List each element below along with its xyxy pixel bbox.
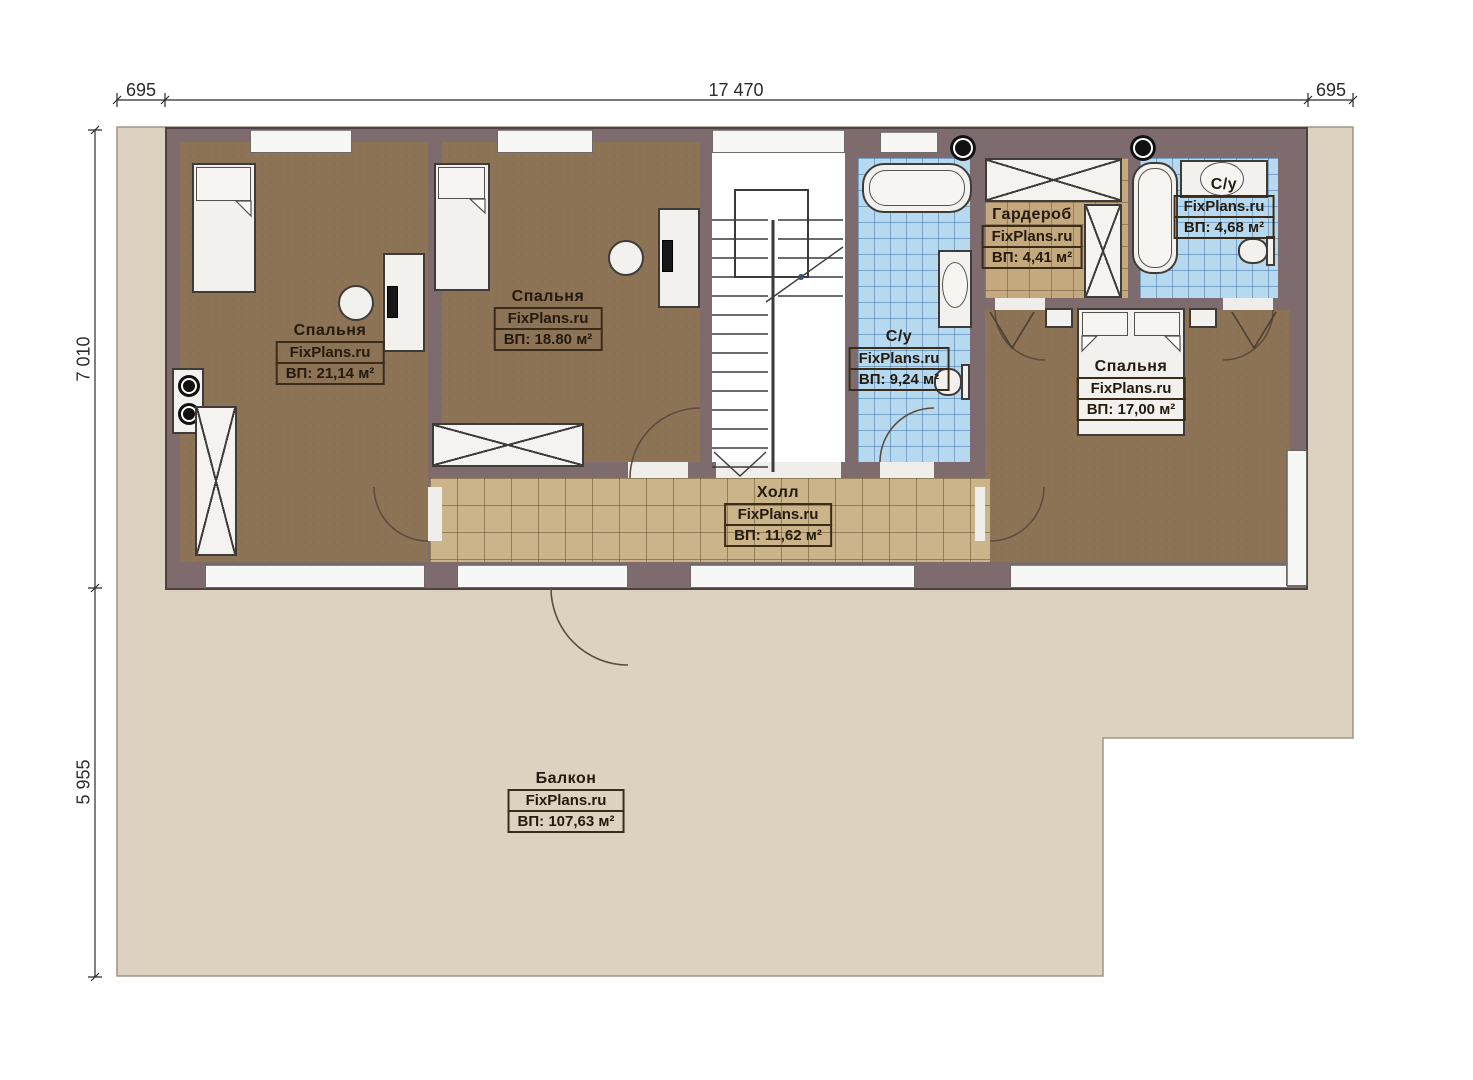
room-label-wc2: С/у FixPlans.ru ВП: 4,68 м² bbox=[1174, 176, 1275, 239]
bed-pillow bbox=[438, 167, 485, 199]
bathtub-inner bbox=[869, 170, 965, 206]
dim-left-balcony: 5 955 bbox=[74, 759, 95, 804]
window-bottom-bedroom3 bbox=[1010, 564, 1288, 588]
chair bbox=[608, 240, 644, 276]
toilet-tank bbox=[961, 364, 970, 400]
chair bbox=[338, 285, 374, 321]
toilet-icon bbox=[1238, 238, 1268, 264]
door-gap-wardrobe bbox=[995, 298, 1045, 310]
wardrobe-cabinet bbox=[432, 423, 584, 467]
window-top-bedroom2 bbox=[497, 129, 593, 153]
toilet-tank bbox=[1266, 236, 1275, 266]
bathtub-inner bbox=[1138, 168, 1172, 268]
window-top-bedroom1 bbox=[250, 129, 352, 153]
wardrobe-cabinet bbox=[195, 406, 237, 556]
vent-icon bbox=[1130, 135, 1156, 161]
room-label-wardrobe: Гардероб FixPlans.ru ВП: 4,41 м² bbox=[982, 206, 1083, 269]
door-gap-wc2 bbox=[1223, 298, 1273, 310]
room-label-hall: Холл FixPlans.ru ВП: 11,62 м² bbox=[724, 484, 832, 547]
door-gap-bedroom3 bbox=[975, 487, 985, 541]
nightstand bbox=[1045, 308, 1073, 328]
vent-icon bbox=[950, 135, 976, 161]
monitor-icon bbox=[662, 240, 673, 272]
wardrobe-cabinet bbox=[985, 158, 1122, 202]
stairwell-floor bbox=[712, 142, 845, 462]
room-label-wc1: С/у FixPlans.ru ВП: 9,24 м² bbox=[849, 328, 950, 391]
room-hall-floor bbox=[430, 478, 990, 562]
bed-pillow bbox=[1082, 312, 1128, 336]
room-label-bedroom3: Спальня FixPlans.ru ВП: 17,00 м² bbox=[1077, 358, 1186, 421]
room-label-bedroom1: Спальня FixPlans.ru ВП: 21,14 м² bbox=[276, 322, 385, 385]
window-top-stairs bbox=[712, 129, 845, 153]
window-bottom-hall bbox=[690, 564, 915, 588]
dim-top-width: 17 470 bbox=[708, 80, 763, 101]
sink-icon bbox=[942, 262, 968, 308]
floor-plan-canvas: Спальня FixPlans.ru ВП: 21,14 м² Спальня… bbox=[0, 0, 1473, 1080]
window-right-bedroom3 bbox=[1286, 450, 1307, 586]
stair-hall-opening bbox=[716, 462, 841, 478]
dim-top-left: 695 bbox=[126, 80, 156, 101]
room-label-bedroom2: Спальня FixPlans.ru ВП: 18.80 м² bbox=[494, 288, 603, 351]
bed-pillow bbox=[1134, 312, 1180, 336]
door-gap-bedroom1 bbox=[428, 487, 442, 541]
door-gap-bedroom2 bbox=[628, 462, 688, 478]
balcony-door bbox=[457, 564, 628, 588]
monitor-icon bbox=[387, 286, 398, 318]
dim-top-right: 695 bbox=[1316, 80, 1346, 101]
nightstand bbox=[1189, 308, 1217, 328]
vent-icon bbox=[178, 375, 200, 397]
window-top-wc1 bbox=[880, 131, 938, 153]
bed-pillow bbox=[196, 167, 251, 201]
room-label-balcony: Балкон FixPlans.ru ВП: 107,63 м² bbox=[508, 770, 625, 833]
window-bottom-bedroom1 bbox=[205, 564, 425, 588]
dim-left-height: 7 010 bbox=[74, 336, 95, 381]
wardrobe-cabinet bbox=[1084, 204, 1122, 298]
door-gap-wc1 bbox=[880, 462, 934, 478]
